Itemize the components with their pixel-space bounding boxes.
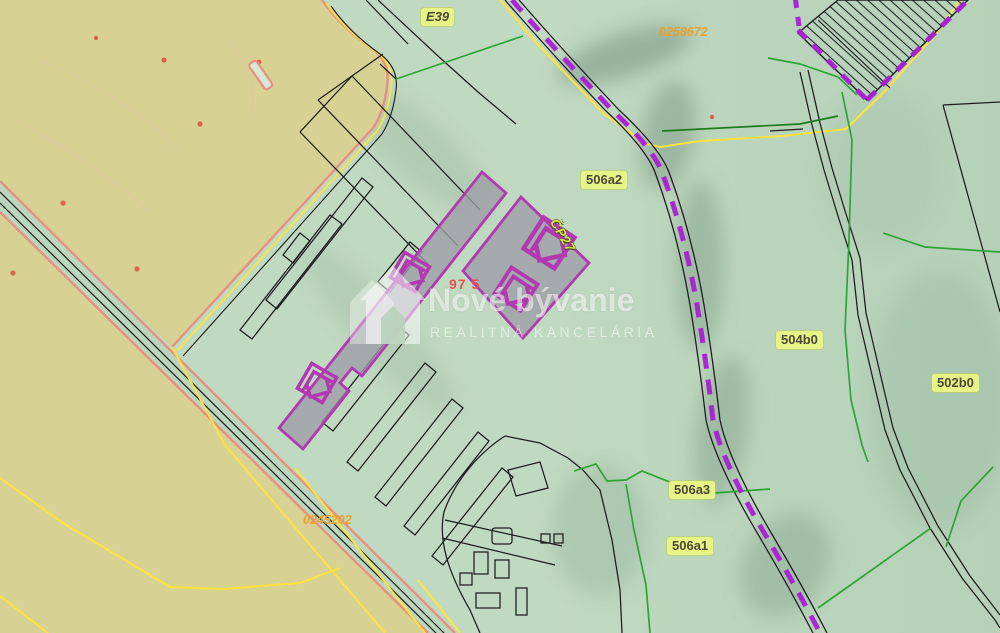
road-ref-label: E39 xyxy=(421,8,454,26)
parcel-label-506a1: 506a1 xyxy=(667,537,713,555)
parcel-label-504b0: 504b0 xyxy=(776,331,823,349)
cadastral-map-canvas[interactable]: Nové bývanie REALITNÁ KANCELÁRIA E39 025… xyxy=(0,0,1000,633)
parcel-label-502b0: 502b0 xyxy=(932,374,979,392)
measurement-label: 97 5 xyxy=(449,276,480,292)
parcel-code-bottom-left: 0245202 xyxy=(303,513,352,527)
parcel-code-top-right: 0258672 xyxy=(659,25,708,39)
parcel-label-506a2: 506a2 xyxy=(581,171,627,189)
parcel-label-506a3: 506a3 xyxy=(669,481,715,499)
map-layers xyxy=(0,0,1000,633)
